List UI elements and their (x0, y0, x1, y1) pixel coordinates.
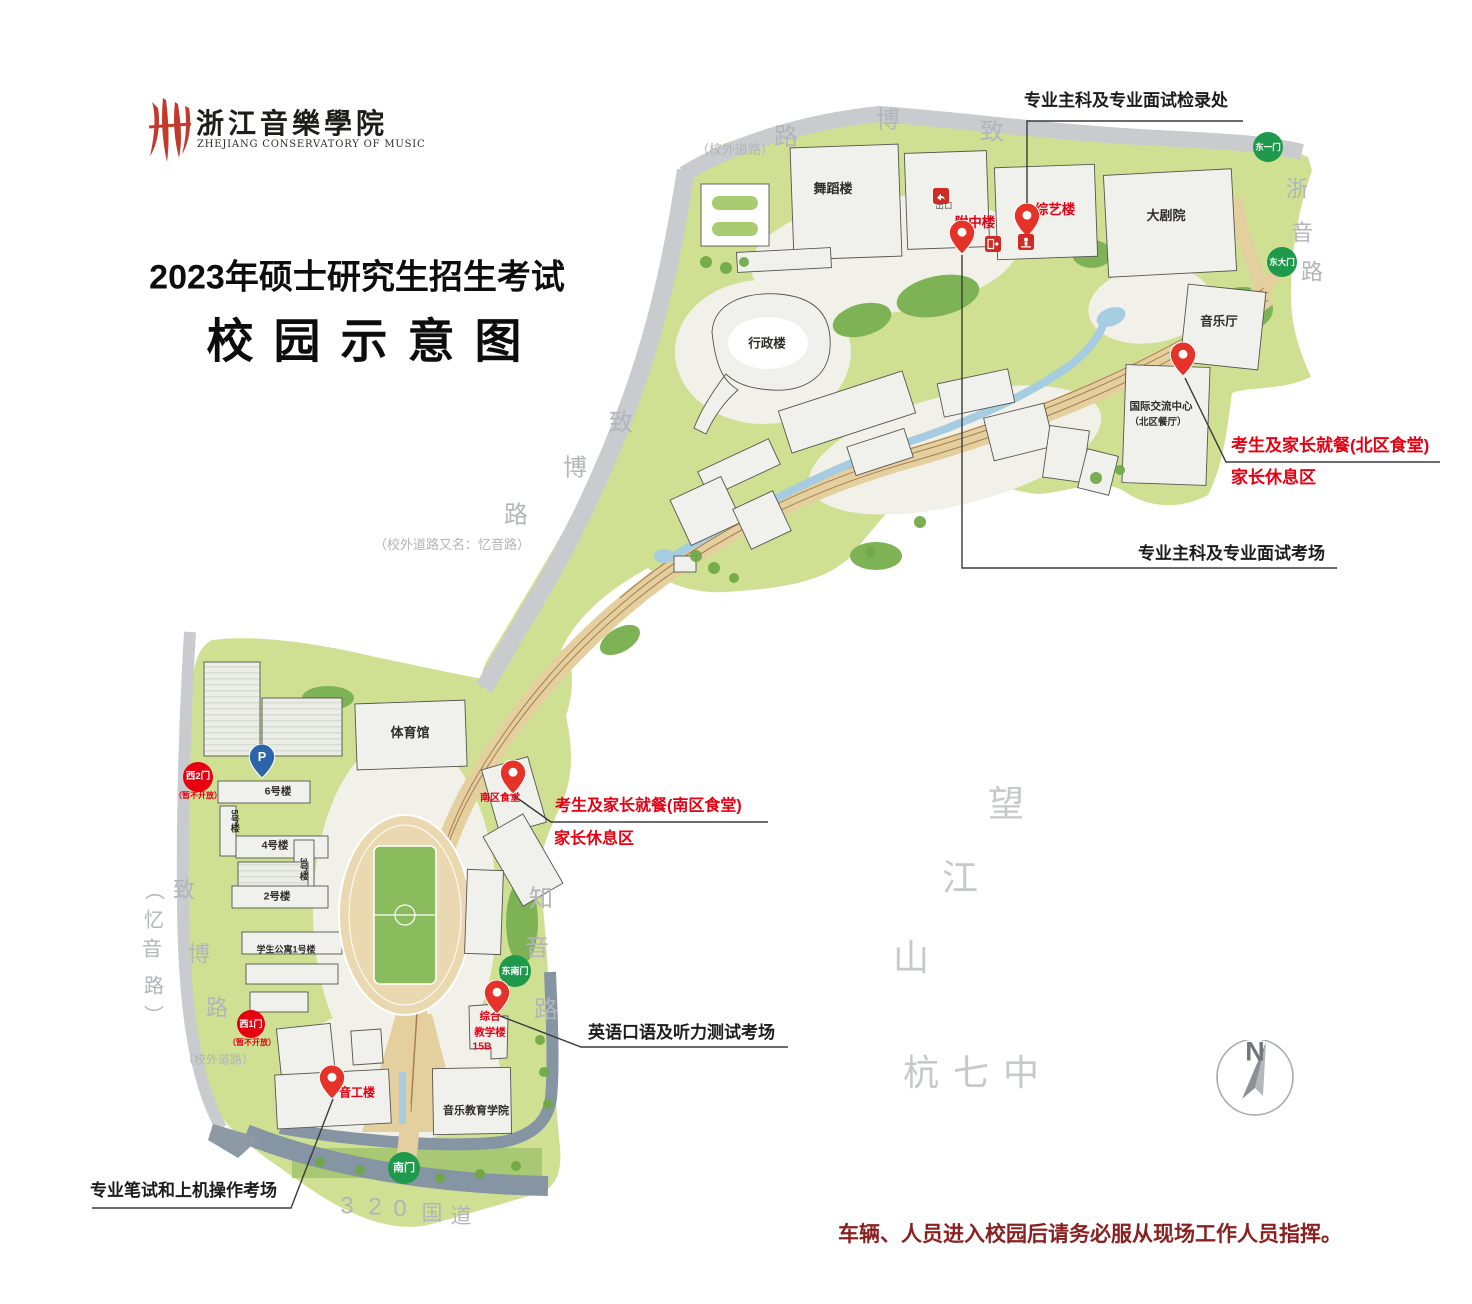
gate-note-west1: （暂不开放） (228, 1039, 276, 1047)
compass-north-label: N (1245, 1037, 1265, 1068)
road-label-zhi-top: 致 (980, 119, 1004, 144)
building-label-beiqucanting: （北区餐厅） (1129, 418, 1186, 428)
svg-text:P: P (258, 749, 267, 764)
road-label-yi-west: 忆 (144, 911, 164, 932)
building-label-2haolou: 2号楼 (264, 891, 291, 902)
parking-pin: P (249, 744, 275, 778)
road-label-yin-west: 音 (142, 940, 162, 961)
annotation-north-dining-1: 考生及家长就餐(北区食堂) (1231, 437, 1429, 455)
building-label-jiaoxuelou: 教学楼 (474, 1027, 506, 1038)
road-label-zhi-mid: 致 (609, 410, 633, 435)
gate-note-west2: （暂不开放） (174, 792, 222, 800)
building-label-4haolou: 4号楼 (262, 840, 289, 851)
road-label-bo-top: 博 (876, 107, 900, 132)
conservatory-seal-logo (147, 96, 193, 164)
building-label-yinyueting: 音乐厅 (1200, 315, 1238, 328)
annotation-checkin: 专业主科及专业面试检录处 (1024, 92, 1228, 110)
conservatory-name-en: ZHEJIANG CONSERVATORY OF MUSIC (197, 139, 426, 150)
road-note-top: （校外道路） (696, 143, 774, 157)
building-label-wudaolou: 舞蹈楼 (813, 182, 852, 196)
road-note-mid: （校外道路又名：忆音路） (374, 538, 530, 552)
road-label-zhi-sw: 致 (173, 878, 195, 901)
poster-title: 2023年硕士研究生招生考试 (149, 250, 565, 299)
building-label-3haolou: 3号楼 (298, 857, 307, 880)
building-label-yinyuejiaoyu: 音乐教育学院 (443, 1106, 509, 1118)
building-label-dajuyuan: 大剧院 (1146, 209, 1185, 223)
gate-xi1men: 西1门 (237, 1010, 265, 1038)
road-label-320-3: 3 (340, 1193, 353, 1218)
gate-dongyimen: 东一门 (1253, 132, 1283, 162)
pin-zonghejiaoxuelou (484, 980, 510, 1014)
building-label-zongyilou: 综艺楼 (1035, 203, 1076, 217)
gate-dongdamen: 东大门 (1267, 247, 1297, 277)
safety-notice: 车辆、人员进入校园后请务必服从现场工作人员指挥。 (838, 1218, 1342, 1248)
building-label-15b: 15B (472, 1041, 491, 1052)
road-label-bo-sw: 博 (188, 942, 210, 965)
area-label-hangqizhong: 杭七中 (903, 1054, 1053, 1092)
road-label-320-dao: 道 (451, 1206, 472, 1228)
poster-subtitle: 校园示意图 (207, 303, 542, 372)
annotation-written-test: 专业笔试和上机操作考场 (90, 1182, 277, 1200)
building-label-xueshengongyu: 学生公寓1号楼 (256, 945, 315, 954)
gate-nanmen: 南门 (388, 1152, 420, 1184)
road-label-bo-mid: 博 (563, 455, 587, 480)
road-label-paren-close: ） (141, 1005, 162, 1025)
road-label-320-0: 0 (393, 1196, 406, 1221)
road-label-lu-mid: 路 (504, 502, 528, 527)
building-label-nanqushitang: 南区食堂 (480, 794, 520, 805)
building-label-6haolou: 6号楼 (265, 786, 292, 797)
annotation-interview-room: 专业主科及专业面试考场 (1138, 545, 1325, 563)
conservatory-name-cn: 浙江音樂學院 (196, 102, 388, 142)
pin-fuzhonglou (949, 220, 975, 254)
road-label-zhe: 浙 (1286, 177, 1308, 200)
road-label-paren-open: （ (142, 880, 163, 900)
area-label-jiang: 江 (942, 859, 978, 897)
annotation-english-test: 英语口语及听力测试考场 (588, 1024, 775, 1042)
road-label-320-2: 2 (368, 1194, 381, 1219)
road-label-yin2: 音 (525, 935, 549, 960)
annotation-south-dining-1: 考生及家长就餐(南区食堂) (555, 799, 742, 816)
campus-map-poster: 浙江音樂學院 ZHEJIANG CONSERVATORY OF MUSIC 20… (0, 0, 1472, 1304)
pin-zongyilou (1014, 203, 1040, 237)
building-label-tiyuguan: 体育馆 (390, 726, 429, 740)
building-label-5haolou: 5号楼 (229, 809, 238, 832)
area-label-shan: 山 (893, 939, 929, 977)
road-note-sw: （校外道路） (182, 1054, 254, 1067)
road-label-zhi2: 知 (529, 886, 553, 911)
road-label-lu2: 路 (534, 997, 558, 1022)
road-label-yin-east: 音 (1291, 221, 1313, 244)
building-label-guojijiaoliu: 国际交流中心 (1130, 401, 1193, 412)
area-label-wang: 望 (988, 785, 1024, 823)
road-label-lu-west: 路 (144, 977, 164, 998)
road-label-320-guo: 国 (422, 1203, 443, 1225)
road-label-lu-sw: 路 (206, 996, 228, 1019)
annotation-south-dining-2: 家长休息区 (554, 832, 634, 849)
road-label-lu-top: 路 (774, 124, 798, 149)
road-label-lu-east: 路 (1301, 260, 1323, 283)
pin-south-dining (500, 760, 526, 794)
pin-north-dining (1170, 342, 1196, 376)
building-label-xingzhenglou: 行政楼 (748, 337, 786, 350)
pin-yingonglou (319, 1065, 345, 1099)
annotation-north-dining-2: 家长休息区 (1231, 469, 1316, 487)
gate-xi2men: 西2门 (183, 762, 213, 792)
